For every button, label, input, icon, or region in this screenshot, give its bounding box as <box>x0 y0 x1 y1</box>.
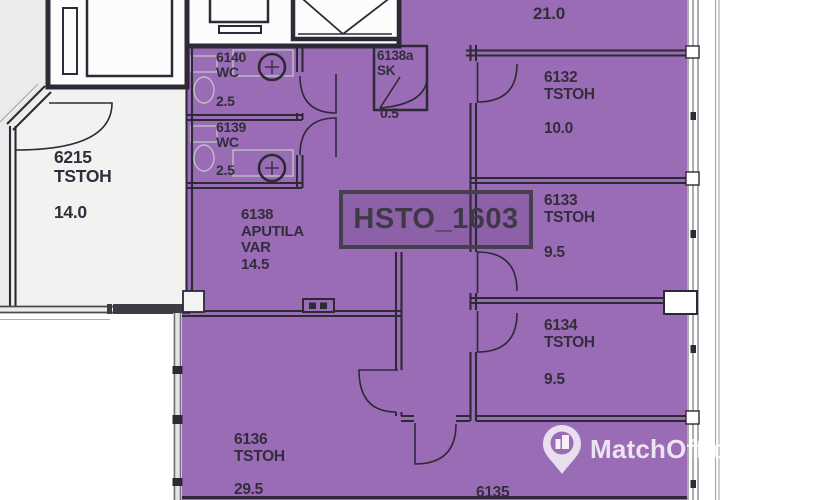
room-label-top-area: 21.0 <box>533 5 565 24</box>
room-label-6135: 6135 <box>476 484 509 500</box>
matchoffice-pin-icon <box>542 424 582 474</box>
unit-label: HSTO_1603 <box>341 192 531 247</box>
elevator-block <box>0 0 399 122</box>
room-label-6133: 6133 TSTOH 9.5 <box>544 192 595 261</box>
column-notch <box>183 291 204 312</box>
west-window-wall <box>173 313 183 500</box>
south-wall-6215 <box>0 304 190 320</box>
room-label-6215: 6215 TSTOH 14.0 <box>54 148 112 222</box>
drain-symbols <box>259 54 285 181</box>
room-label-6138a: 6138a SK <box>377 49 413 79</box>
floorplan: 21.0 6140 WC 2.5 6138a SK 0.5 6139 WC 2.… <box>0 0 825 500</box>
watermark-brand: MatchOffice <box>590 434 741 465</box>
wall-window-box <box>664 291 697 314</box>
room-label-6140: 6140 WC 2.5 <box>216 50 246 109</box>
room-label-6136: 6136 TSTOH 29.5 <box>234 431 285 498</box>
room-label-6134: 6134 TSTOH 9.5 <box>544 317 595 388</box>
room-area-6138a: 0.5 <box>380 106 399 121</box>
room-label-6139: 6139 WC 2.5 <box>216 120 246 178</box>
outside-bottom-left <box>0 313 174 500</box>
watermark: MatchOffice <box>542 424 741 474</box>
wall-symbol <box>303 299 334 312</box>
room-label-6132: 6132 TSTOH 10.0 <box>544 69 595 137</box>
room-label-6138: 6138 APUTILA VAR 14.5 <box>241 207 304 273</box>
